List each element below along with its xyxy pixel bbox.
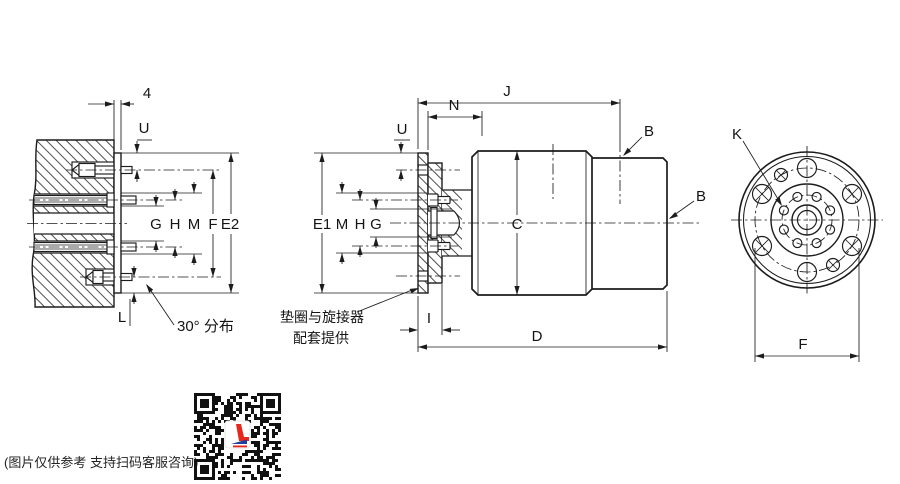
callout-b-top: B — [623, 123, 654, 156]
dim-label-e2: E2 — [221, 216, 239, 233]
dim-label-u-left: U — [139, 120, 150, 137]
dimension-e1: E1 — [313, 153, 331, 293]
left-section-view: 4 U G H M F — [27, 85, 239, 335]
dim-label-e1: E1 — [313, 216, 331, 233]
angle-distribution-note: 30° 分布 — [146, 284, 234, 335]
dimension-d: D — [418, 328, 667, 350]
dim-label-c: C — [512, 216, 523, 233]
dimension-n: N — [428, 97, 482, 120]
qr-logo — [225, 421, 250, 448]
dim-label-h-left: H — [170, 216, 181, 233]
dim-label-n: N — [449, 97, 460, 114]
callout-b-end: B — [669, 188, 706, 219]
dimension-i: I — [400, 310, 460, 333]
dimension-u-left: U — [134, 120, 152, 182]
dimension-g-front: G — [370, 198, 382, 248]
dim-label-g-front: G — [370, 216, 382, 233]
dim-label-g-left: G — [150, 216, 162, 233]
angle-note-label: 30° 分布 — [177, 318, 234, 335]
dim-label-i: I — [427, 310, 431, 327]
end-view: K F — [731, 126, 883, 362]
rotor-shaft — [592, 158, 667, 289]
dim-label-f-end: F — [798, 336, 807, 353]
dim-label-j: J — [503, 83, 511, 100]
dim-label-m-left: M — [188, 216, 201, 233]
dimension-h-left: H — [170, 189, 181, 258]
washer-note: 垫圈与旋接器 配套提供 — [280, 288, 419, 346]
disclaimer-text: (图片仅供参考 支持扫码客服咨询) — [4, 455, 198, 470]
technical-drawing: 4 U G H M F — [0, 0, 900, 484]
dimension-g-left: G — [150, 195, 162, 252]
dim-label-l: L — [118, 309, 126, 326]
callout-label-b-end: B — [696, 188, 706, 205]
front-section-view: J N U E1 M H — [280, 83, 706, 352]
callout-label-b-top: B — [644, 123, 654, 140]
callout-label-k: K — [732, 126, 742, 143]
dimension-e2: E2 — [221, 153, 239, 293]
qr-logo-caption-bar — [233, 446, 247, 448]
dimension-m-front: M — [336, 182, 349, 264]
dim-label-f-left: F — [208, 216, 217, 233]
dim-label-h-front: H — [355, 216, 366, 233]
dimension-u-front: U — [394, 121, 410, 181]
dimension-f-left: F — [208, 170, 217, 277]
washer-note-line2: 配套提供 — [293, 330, 349, 346]
dim-label-d: D — [532, 328, 543, 345]
dimension-c: C — [512, 151, 523, 295]
dim-label-4: 4 — [143, 85, 151, 102]
dimension-m-left: M — [188, 182, 201, 265]
dim-label-m-front: M — [336, 216, 349, 233]
washer-note-line1: 垫圈与旋接器 — [280, 309, 364, 325]
dim-label-u-front: U — [397, 121, 408, 138]
dimension-plate-thickness: 4 — [88, 85, 151, 107]
dimension-h-front: H — [355, 189, 366, 257]
flange-plate — [114, 153, 121, 293]
